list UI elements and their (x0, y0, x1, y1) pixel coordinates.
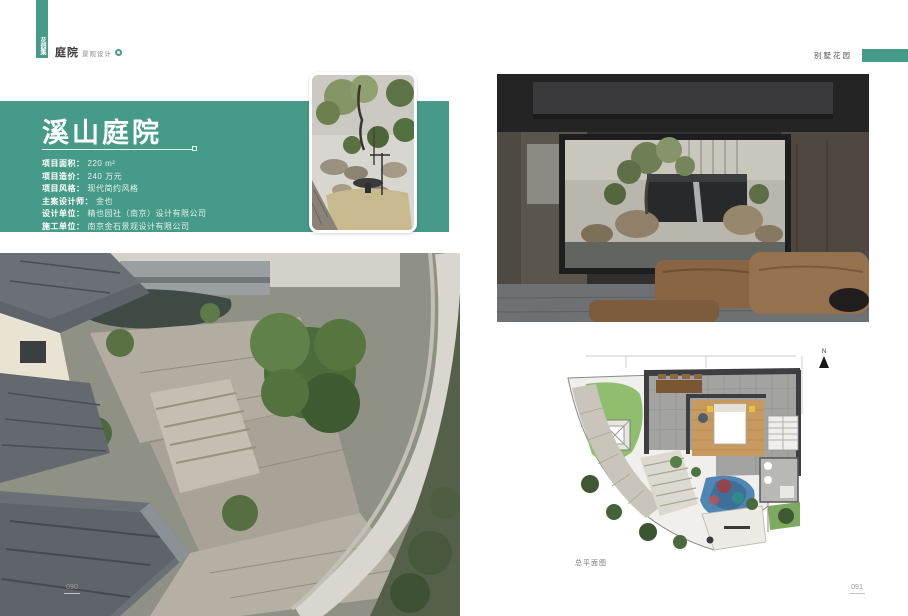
page-number-rule (64, 593, 80, 594)
site-plan-drawing (556, 354, 814, 559)
aerial-courtyard-photo (0, 253, 460, 616)
site-plan-illustration (556, 354, 814, 559)
brand-name: 庭院 (55, 44, 79, 60)
brand-subtitle: 景观设计 (82, 48, 112, 58)
info-row-design-firm: 设计单位： 精也园社（南京）设计有限公司 (42, 208, 207, 221)
book-spread: 花园集 庭院 景观设计 溪山庭院 项目面积： 220 m² 项目造价： 240 … (0, 0, 908, 616)
page-number-left: 090 (60, 584, 84, 594)
page-number-right: 091 (845, 584, 869, 594)
interior-courtyard-photo (497, 74, 869, 322)
north-label: N (816, 349, 832, 356)
info-label: 主案设计师： (42, 196, 93, 207)
section-header-bar (862, 49, 908, 62)
page-number-left-text: 090 (66, 584, 78, 591)
brand-logo-icon: 花园集 (39, 37, 45, 58)
garden-photo-card (309, 72, 417, 233)
info-label: 项目造价： (42, 171, 85, 182)
info-label: 项目风格： (42, 183, 85, 194)
info-label: 设计单位： (42, 208, 85, 219)
info-value: 南京金石景观设计有限公司 (88, 221, 190, 232)
info-value: 240 万元 (88, 171, 123, 182)
info-row-builder: 施工单位： 南京金石景观设计有限公司 (42, 221, 207, 234)
title-divider (42, 149, 192, 150)
north-arrow-icon (819, 356, 829, 368)
section-header-label: 别墅花园 (814, 50, 852, 61)
info-row-style: 项目风格： 现代简约风格 (42, 183, 207, 196)
info-label: 项目面积： (42, 158, 85, 169)
project-info-list: 项目面积： 220 m² 项目造价： 240 万元 项目风格： 现代简约风格 主… (42, 158, 207, 233)
project-title: 溪山庭院 (42, 111, 162, 150)
info-row-area: 项目面积： 220 m² (42, 158, 207, 171)
brand-logo-bar: 花园集 (36, 0, 48, 58)
info-value: 现代简约风格 (88, 183, 139, 194)
info-row-cost: 项目造价： 240 万元 (42, 171, 207, 184)
plan-caption: 总平面图 (575, 558, 607, 568)
info-value: 220 m² (88, 159, 116, 168)
brand-lockup: 庭院 景观设计 (55, 44, 122, 60)
info-row-designer: 主案设计师： 金也 (42, 196, 207, 209)
info-value: 精也园社（南京）设计有限公司 (88, 208, 207, 219)
garden-photo (312, 75, 414, 230)
info-label: 施工单位： (42, 221, 85, 232)
aerial-photo-illustration (0, 253, 460, 616)
divider-end-square (192, 146, 197, 151)
north-indicator: N (816, 349, 832, 368)
page-number-right-text: 091 (851, 584, 863, 591)
page-number-rule (849, 593, 865, 594)
interior-photo-illustration (497, 74, 869, 322)
brand-badge-icon (115, 49, 122, 56)
garden-photo-illustration (312, 75, 414, 230)
info-value: 金也 (96, 196, 113, 207)
